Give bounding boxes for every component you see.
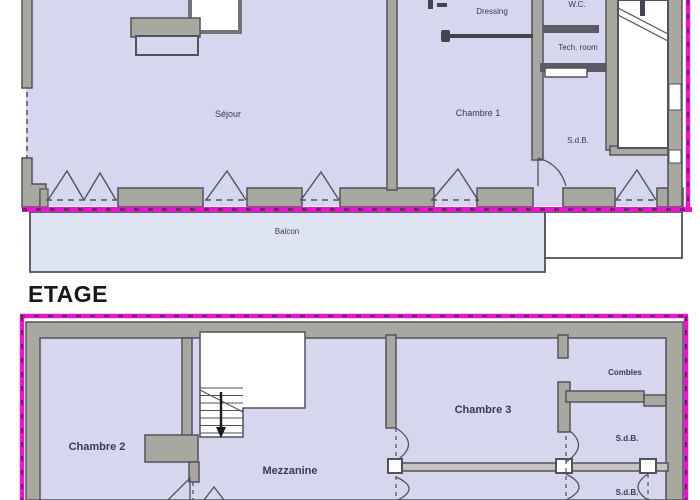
room-label-techroom: Tech. room bbox=[558, 43, 598, 52]
wall-stub bbox=[558, 382, 570, 432]
window-right-wall bbox=[669, 150, 681, 163]
room-label-sdb-top: S.d.B. bbox=[616, 434, 639, 443]
room-label-sdb: S.d.B. bbox=[567, 136, 589, 145]
facade-wall bbox=[40, 188, 683, 207]
room-label-balcon: Balcon bbox=[275, 227, 299, 236]
plan-top: Séjour Chambre 1 Dressing W.C. Tech. roo… bbox=[22, 0, 692, 272]
room-label-wc: W.C. bbox=[568, 0, 585, 9]
kitchen-counter bbox=[131, 18, 200, 37]
wall-stub-top bbox=[558, 335, 568, 358]
closet-rod-end bbox=[441, 30, 450, 42]
balcony-void bbox=[545, 212, 682, 258]
fixture-mark bbox=[437, 3, 447, 7]
room-label-combles: Combles bbox=[608, 368, 642, 377]
balcony-area bbox=[30, 212, 545, 272]
wall-stairwell-left bbox=[606, 0, 618, 150]
thin-wall bbox=[656, 463, 668, 471]
floor-title-etage: ETAGE bbox=[28, 281, 108, 307]
knee-wall bbox=[566, 391, 644, 402]
room-label-chambre2: Chambre 2 bbox=[69, 441, 126, 453]
plan-etage: ETAGE bbox=[20, 281, 688, 500]
floor-plan-svg: Séjour Chambre 1 Dressing W.C. Tech. roo… bbox=[0, 0, 700, 500]
wall-post bbox=[556, 459, 572, 473]
thin-wall bbox=[572, 463, 640, 471]
stair-stub bbox=[640, 0, 645, 16]
wall-chambre1-sdb bbox=[532, 0, 543, 160]
wall-chambre2-right bbox=[182, 338, 192, 437]
wall-chambre3-left bbox=[386, 335, 396, 428]
room-label-dressing: Dressing bbox=[476, 7, 508, 16]
etage-floor-slab bbox=[40, 338, 666, 500]
room-label-chambre1: Chambre 1 bbox=[456, 108, 501, 118]
wall-left-top bbox=[22, 0, 32, 88]
room-label-mezzanine: Mezzanine bbox=[262, 465, 317, 477]
wall-post bbox=[388, 459, 402, 473]
wall-wc bbox=[543, 25, 599, 33]
chimney-block bbox=[145, 435, 198, 462]
knee-wall-step bbox=[644, 395, 666, 406]
wall-post bbox=[640, 459, 656, 473]
room-label-sdb-bottom: S.d.B. bbox=[616, 488, 639, 497]
room-label-chambre3: Chambre 3 bbox=[455, 404, 512, 416]
wall-sejour-chambre1 bbox=[387, 0, 397, 190]
thin-wall bbox=[402, 463, 556, 471]
stairwell-top bbox=[618, 0, 668, 148]
sdb-vanity bbox=[545, 68, 587, 77]
stairwell-void bbox=[618, 0, 668, 148]
kitchen-island bbox=[136, 36, 198, 55]
window-right-wall bbox=[669, 84, 681, 110]
room-label-sejour: Séjour bbox=[215, 109, 241, 119]
floor-plan-page: Séjour Chambre 1 Dressing W.C. Tech. roo… bbox=[0, 0, 700, 500]
fixture-mark bbox=[428, 0, 433, 9]
